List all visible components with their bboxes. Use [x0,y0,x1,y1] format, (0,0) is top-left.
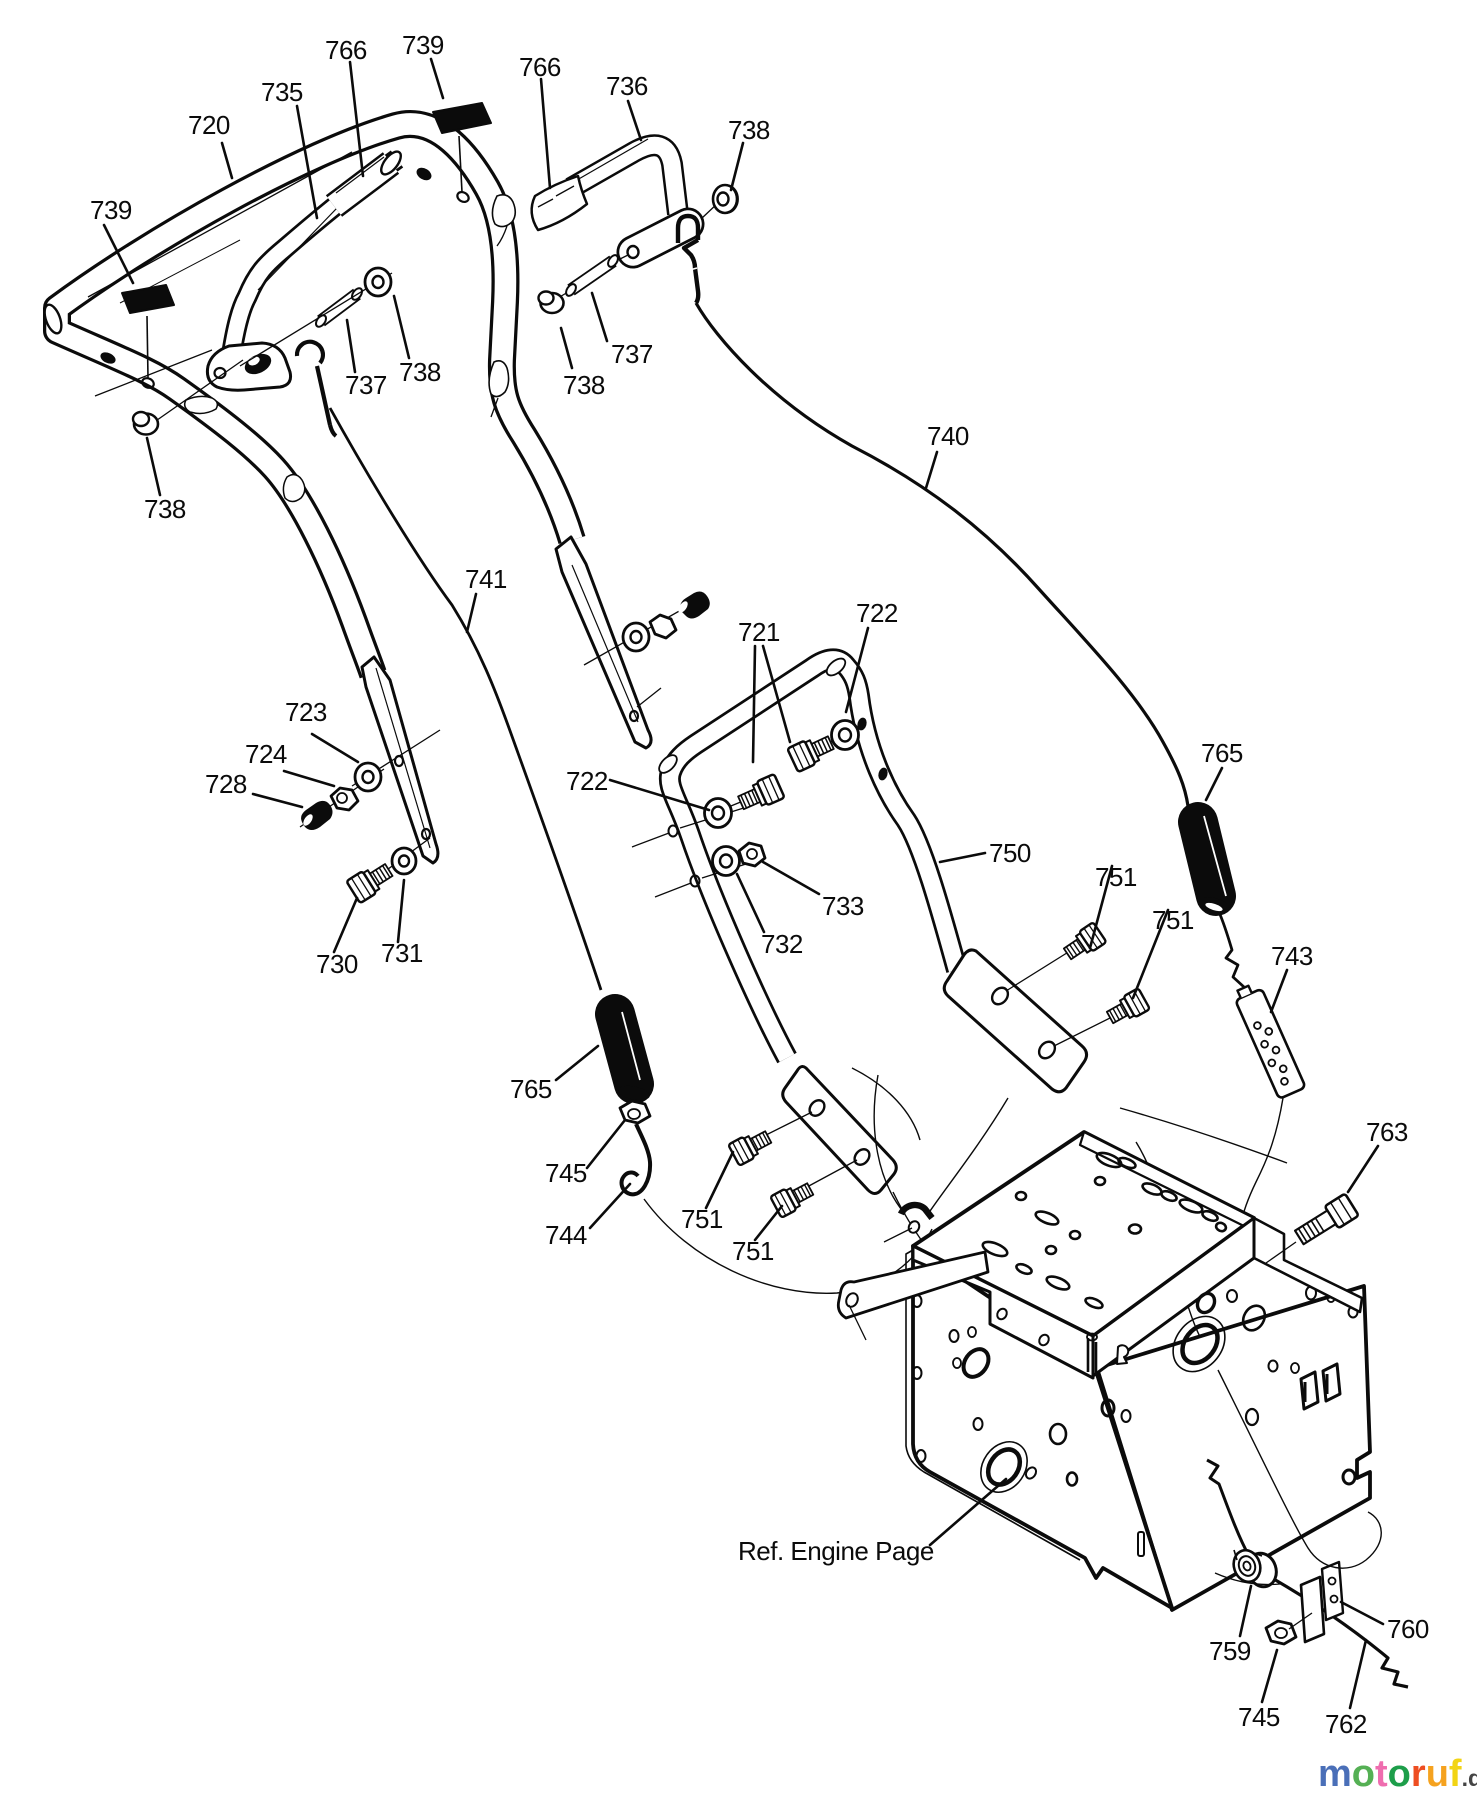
svg-text:740: 740 [927,421,969,451]
svg-text:766: 766 [325,35,367,65]
svg-text:739: 739 [402,30,444,60]
svg-text:751: 751 [1152,905,1194,935]
svg-text:766: 766 [519,52,561,82]
svg-text:730: 730 [316,949,358,979]
svg-text:745: 745 [545,1158,587,1188]
svg-text:735: 735 [261,77,303,107]
svg-text:745: 745 [1238,1702,1280,1732]
svg-text:738: 738 [728,115,770,145]
svg-text:743: 743 [1271,941,1313,971]
svg-text:737: 737 [611,339,653,369]
svg-text:751: 751 [732,1236,774,1266]
svg-text:722: 722 [856,598,898,628]
svg-text:732: 732 [761,929,803,959]
svg-text:motoruf.de: motoruf.de [1318,1753,1477,1795]
svg-text:759: 759 [1209,1636,1251,1666]
svg-text:738: 738 [563,370,605,400]
svg-text:751: 751 [1095,862,1137,892]
svg-text:760: 760 [1387,1614,1429,1644]
svg-text:737: 737 [345,370,387,400]
svg-text:723: 723 [285,697,327,727]
svg-text:736: 736 [606,71,648,101]
svg-text:724: 724 [245,739,287,769]
svg-text:750: 750 [989,838,1031,868]
svg-text:751: 751 [681,1204,723,1234]
svg-text:731: 731 [381,938,423,968]
svg-text:Ref. Engine Page: Ref. Engine Page [738,1536,934,1566]
svg-text:720: 720 [188,110,230,140]
svg-text:722: 722 [566,766,608,796]
svg-text:738: 738 [399,357,441,387]
svg-text:741: 741 [465,564,507,594]
svg-text:765: 765 [510,1074,552,1104]
svg-text:728: 728 [205,769,247,799]
svg-text:739: 739 [90,195,132,225]
svg-text:738: 738 [144,494,186,524]
svg-text:763: 763 [1366,1117,1408,1147]
svg-text:733: 733 [822,891,864,921]
svg-text:744: 744 [545,1220,587,1250]
svg-text:762: 762 [1325,1709,1367,1739]
svg-text:765: 765 [1201,738,1243,768]
svg-text:721: 721 [738,617,780,647]
